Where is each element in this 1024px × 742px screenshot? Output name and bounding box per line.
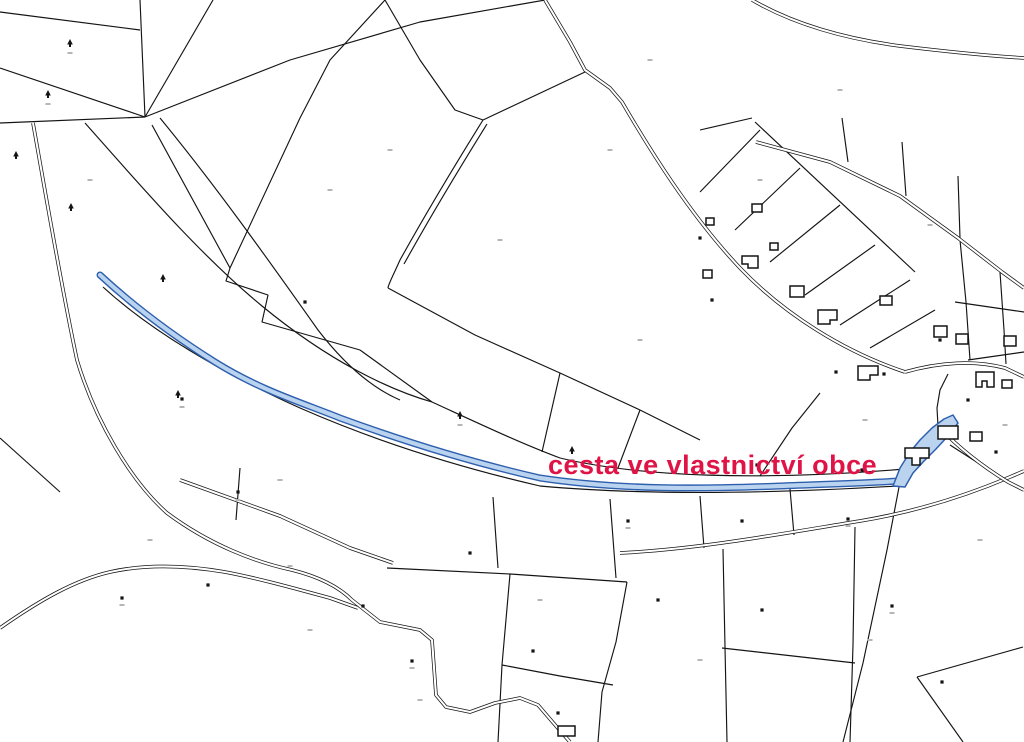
coniferous-tree-icon bbox=[160, 274, 166, 282]
parcel-number-speck bbox=[498, 239, 503, 241]
coniferous-tree-icon bbox=[67, 39, 73, 47]
parcel-dot-marker bbox=[236, 490, 239, 493]
parcel-dot-marker bbox=[890, 604, 893, 607]
coniferous-tree-icon bbox=[175, 390, 181, 398]
parcel-dot-marker bbox=[626, 519, 629, 522]
cadastral-map: cesta ve vlastnictví obce bbox=[0, 0, 1024, 742]
parcel-dot-marker bbox=[180, 397, 183, 400]
parcel-number-speck bbox=[698, 659, 703, 661]
parcel-number-speck bbox=[890, 612, 895, 614]
coniferous-tree-icon bbox=[45, 90, 51, 98]
parcel-number-speck bbox=[458, 424, 463, 426]
parcel-dot-marker bbox=[556, 711, 559, 714]
parcel-number-speck bbox=[538, 599, 543, 601]
parcel-number-speck bbox=[328, 189, 333, 191]
map-canvas: cesta ve vlastnictví obce bbox=[0, 0, 1024, 742]
parcel-number-speck bbox=[236, 499, 241, 501]
parcel-dot-marker bbox=[468, 551, 471, 554]
parcel-dot-marker bbox=[940, 680, 943, 683]
parcel-dot-marker bbox=[303, 300, 306, 303]
parcel-number-speck bbox=[838, 89, 843, 91]
parcel-dot-marker bbox=[710, 298, 713, 301]
parcel-dot-marker bbox=[120, 596, 123, 599]
parcel-number-speck bbox=[180, 406, 185, 408]
parcel-dot-marker bbox=[834, 370, 837, 373]
parcel-number-speck bbox=[928, 224, 933, 226]
parcel-dot-marker bbox=[882, 372, 885, 375]
coniferous-tree-icon bbox=[68, 203, 74, 211]
route-ownership-label: cesta ve vlastnictví obce bbox=[548, 450, 877, 480]
parcel-number-speck bbox=[68, 52, 73, 54]
parcel-number-speck bbox=[758, 179, 763, 181]
parcel-number-speck bbox=[410, 667, 415, 669]
parcel-number-speck bbox=[120, 604, 125, 606]
parcel-number-speck bbox=[638, 339, 643, 341]
parcel-number-speck bbox=[418, 699, 423, 701]
parcel-number-speck bbox=[868, 639, 873, 641]
parcel-number-speck bbox=[626, 527, 631, 529]
parcel-number-speck bbox=[46, 103, 51, 105]
coniferous-tree-icon bbox=[13, 151, 19, 159]
parcel-dot-marker bbox=[656, 598, 659, 601]
parcel-number-speck bbox=[1003, 424, 1008, 426]
parcel-dot-marker bbox=[410, 659, 413, 662]
parcel-number-speck bbox=[278, 479, 283, 481]
parcel-number-speck bbox=[648, 59, 653, 61]
parcel-dot-marker bbox=[698, 236, 701, 239]
coniferous-tree-icon bbox=[457, 411, 463, 419]
parcel-number-speck bbox=[388, 149, 393, 151]
parcel-number-speck bbox=[148, 539, 153, 541]
parcel-dot-marker bbox=[846, 517, 849, 520]
parcel-dot-marker bbox=[206, 583, 209, 586]
parcel-dot-marker bbox=[966, 398, 969, 401]
parcel-number-speck bbox=[88, 179, 93, 181]
parcel-dot-marker bbox=[361, 604, 364, 607]
parcel-dot-marker bbox=[740, 519, 743, 522]
parcel-number-speck bbox=[288, 565, 293, 567]
parcel-number-speck bbox=[608, 149, 613, 151]
parcel-dot-marker bbox=[531, 649, 534, 652]
parcel-number-speck bbox=[863, 419, 868, 421]
parcel-dot-marker bbox=[938, 338, 941, 341]
parcel-dot-marker bbox=[994, 450, 997, 453]
parcel-number-speck bbox=[308, 629, 313, 631]
parcel-number-speck bbox=[846, 525, 851, 527]
parcel-number-speck bbox=[978, 539, 983, 541]
parcel-dot-marker bbox=[760, 608, 763, 611]
